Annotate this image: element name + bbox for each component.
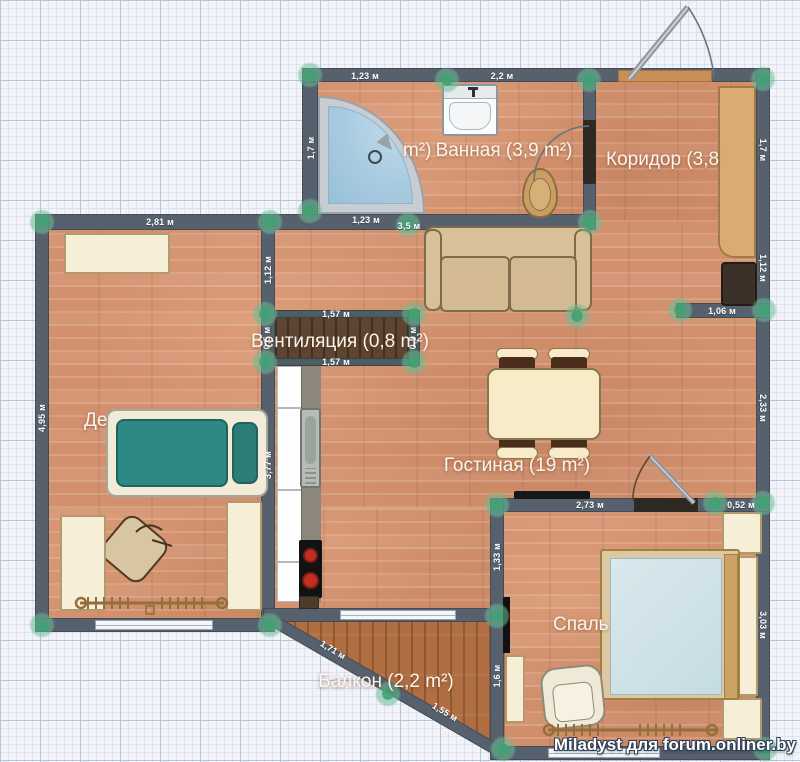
wall-node[interactable] [434, 67, 460, 93]
mattress [116, 419, 228, 487]
wall-node[interactable] [484, 492, 510, 518]
pillow [232, 422, 258, 484]
bedroom-cabinet-left[interactable] [505, 655, 525, 723]
wall-node[interactable] [576, 67, 602, 93]
faucet-icon-stem [472, 87, 475, 97]
wall-node[interactable] [702, 490, 728, 516]
bathroom-door-leaf[interactable] [583, 120, 596, 184]
wall-node[interactable] [751, 297, 777, 323]
dining-table[interactable] [487, 368, 601, 440]
tv-living[interactable] [514, 491, 590, 499]
wall-node[interactable] [667, 297, 693, 323]
measurement-label: 1,06 м [708, 306, 736, 316]
wall-node[interactable] [252, 301, 278, 327]
measurement-label: 3,77 м [263, 451, 273, 479]
wall-node[interactable] [297, 198, 323, 224]
toilet-seat [529, 178, 551, 211]
measurement-label: 2,33 м [758, 394, 768, 422]
headboard [724, 554, 738, 699]
kitchen-sink[interactable] [300, 408, 321, 488]
wall-node[interactable] [29, 612, 55, 638]
measurement-label: 1,12 м [758, 254, 768, 282]
measurement-label: 1,7 м [306, 137, 316, 160]
wall-node[interactable] [564, 303, 590, 329]
double-bed[interactable] [600, 549, 740, 700]
measurement-label: 3,03 м [758, 611, 768, 639]
sofa-cushion [509, 256, 577, 312]
wall-node[interactable] [401, 301, 427, 327]
wall-node[interactable] [297, 62, 323, 88]
room-label-bathroom: Ванная (3,9 m²) [436, 140, 573, 162]
shower-drain-icon [368, 150, 382, 164]
grid-background: { "app": { "watermark": "Miladyst для fo… [0, 0, 800, 762]
wall-node[interactable] [29, 209, 55, 235]
bedroom-wardrobe-topright[interactable] [722, 512, 762, 554]
measurement-label: 1,57 м [322, 309, 350, 319]
armchair-seat [552, 681, 596, 723]
measurement-label: 4,95 м [37, 404, 47, 432]
room-label-corridor: Коридор (3,8 [606, 149, 719, 171]
wall-node[interactable] [750, 66, 776, 92]
window-balcony[interactable] [340, 610, 456, 620]
burner [303, 548, 318, 563]
watermark: Miladyst для forum.onliner.by [554, 735, 796, 755]
sofa-cushion [440, 256, 510, 312]
room-label-ventilation: Вентиляция (0,8 m²) [251, 331, 429, 353]
wall-bedroom-left[interactable] [490, 498, 504, 760]
measurement-label: 1,6 м [492, 665, 502, 688]
stove[interactable] [299, 540, 322, 598]
measurement-label: 1,23 м [352, 215, 380, 225]
room-label-living: Гостиная (19 m²) [444, 455, 590, 477]
drainboard-lines [305, 468, 316, 484]
floor-plan: 1,23 м2,2 м1,7 м1,7 м1,23 м3,5 м2,81 м1,… [0, 0, 800, 762]
corridor-wardrobe-dark[interactable] [721, 262, 757, 306]
burner [302, 572, 319, 589]
wall-node[interactable] [484, 603, 510, 629]
measurement-label: 1,33 м [492, 543, 502, 571]
bedroom-armchair[interactable] [539, 663, 607, 731]
bedroom-cabinet-bottomright[interactable] [722, 698, 762, 740]
measurement-label: 2,81 м [146, 217, 174, 227]
children-cabinet-right[interactable] [226, 501, 262, 611]
wall-node[interactable] [490, 736, 516, 762]
sofa[interactable] [424, 226, 592, 314]
window-children[interactable] [95, 620, 213, 630]
measurement-label: 1,12 м [263, 256, 273, 284]
entry-door-threshold[interactable] [618, 70, 712, 82]
room-label-children: Де [84, 410, 107, 432]
measurement-label: 1,7 м [758, 139, 768, 162]
wall-node[interactable] [257, 612, 283, 638]
sink-bowl [449, 102, 491, 130]
measurement-label: 2,73 м [576, 500, 604, 510]
wall-node[interactable] [577, 209, 603, 235]
measurement-label: 3,5 м [398, 221, 421, 231]
room-label-balcony: Балкон (2,2 m²) [318, 671, 454, 693]
room-label-bedroom: Спаль [553, 614, 609, 636]
children-cabinet-left[interactable] [60, 515, 106, 611]
kitchen-dark-cabinet[interactable] [299, 596, 319, 609]
toilet[interactable] [522, 168, 558, 218]
children-bed[interactable] [106, 409, 268, 497]
measurement-label: 1,57 м [322, 357, 350, 367]
measurement-label: 2,2 м [491, 71, 514, 81]
measurement-label: 1,23 м [351, 71, 379, 81]
bedroom-door-threshold[interactable] [634, 498, 698, 512]
room-label-bathroom-partial: m²) [403, 140, 431, 162]
sink-basin [305, 416, 316, 464]
children-shelf[interactable] [64, 233, 170, 274]
bedroom-wardrobe-right[interactable] [738, 556, 758, 696]
wall-node[interactable] [257, 209, 283, 235]
mattress [610, 558, 722, 695]
measurement-label: 0,52 м [727, 500, 755, 510]
corridor-closet[interactable] [718, 86, 756, 258]
kitchen-cabinet[interactable] [277, 366, 303, 408]
